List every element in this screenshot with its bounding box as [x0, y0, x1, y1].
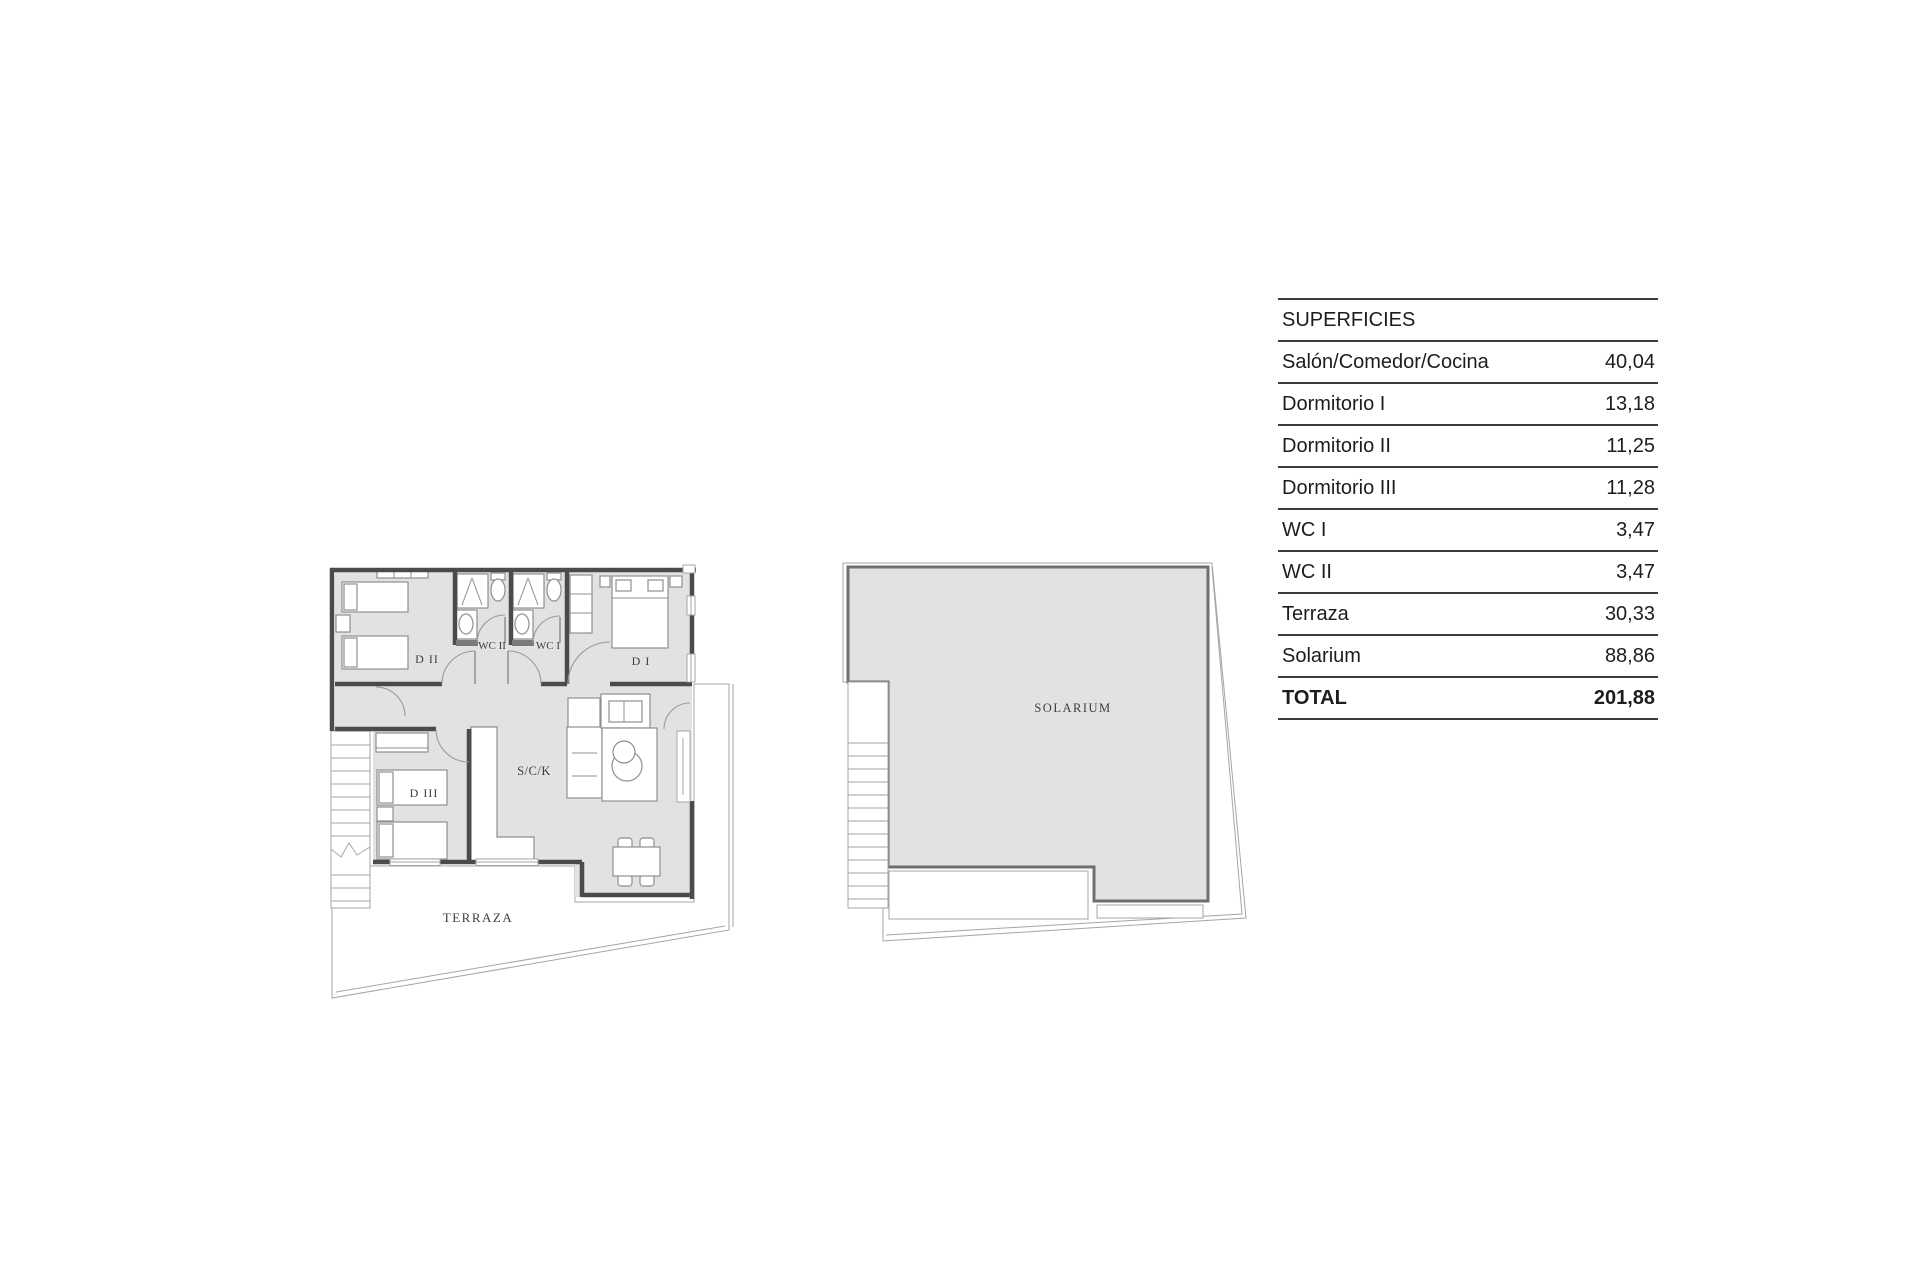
- wc2-threshold: [456, 640, 478, 646]
- table-row: WC II 3,47: [1278, 550, 1658, 592]
- table-total-row: TOTAL 201,88: [1278, 676, 1658, 718]
- row-value: 11,25: [1606, 436, 1655, 456]
- apartment-floorplan: D II WC II WC I D I D III S/C/K TERRAZA: [322, 553, 740, 1005]
- row-label: Terraza: [1282, 604, 1349, 624]
- solarium-stairs: [848, 682, 888, 908]
- table-header-row: SUPERFICIES: [1278, 298, 1658, 340]
- floorplan-sheet: D II WC II WC I D I D III S/C/K TERRAZA …: [0, 0, 1920, 1280]
- table-row: Dormitorio I 13,18: [1278, 382, 1658, 424]
- solarium-label: SOLARIUM: [1034, 701, 1111, 715]
- total-label: TOTAL: [1282, 688, 1347, 708]
- row-value: 13,18: [1605, 394, 1655, 414]
- total-value: 201,88: [1594, 688, 1655, 708]
- room-label-terraza: TERRAZA: [443, 910, 513, 925]
- row-label: WC I: [1282, 520, 1326, 540]
- room-label-d3: D III: [410, 786, 439, 800]
- row-value: 88,86: [1605, 646, 1655, 666]
- row-value: 11,28: [1606, 478, 1655, 498]
- stairs: [331, 731, 370, 908]
- row-label: Dormitorio I: [1282, 394, 1385, 414]
- row-value: 3,47: [1616, 520, 1655, 540]
- table-row: Dormitorio II 11,25: [1278, 424, 1658, 466]
- lower-edge-step: [1097, 905, 1203, 918]
- row-label: Dormitorio II: [1282, 436, 1391, 456]
- row-value: 40,04: [1605, 352, 1655, 372]
- row-label: Solarium: [1282, 646, 1361, 666]
- row-label: Salón/Comedor/Cocina: [1282, 352, 1489, 372]
- room-label-d2: D II: [415, 652, 439, 666]
- lower-roof-opening: [889, 871, 1088, 919]
- solarium-deck: [848, 567, 1208, 901]
- room-label-d1: D I: [632, 654, 651, 668]
- superficies-table: SUPERFICIES Salón/Comedor/Cocina 40,04 D…: [1278, 298, 1658, 720]
- room-label-wc2: WC II: [478, 640, 506, 652]
- room-label-wc1: WC I: [536, 640, 560, 652]
- table-header: SUPERFICIES: [1282, 310, 1415, 330]
- wc1-threshold: [512, 640, 534, 646]
- table-row: Dormitorio III 11,28: [1278, 466, 1658, 508]
- room-label-sck: S/C/K: [517, 764, 551, 778]
- table-row: WC I 3,47: [1278, 508, 1658, 550]
- table-row: Solarium 88,86: [1278, 634, 1658, 676]
- row-value: 3,47: [1616, 562, 1655, 582]
- table-row: Salón/Comedor/Cocina 40,04: [1278, 340, 1658, 382]
- row-label: Dormitorio III: [1282, 478, 1396, 498]
- row-value: 30,33: [1605, 604, 1655, 624]
- table-row: Terraza 30,33: [1278, 592, 1658, 634]
- row-label: WC II: [1282, 562, 1332, 582]
- solarium-floorplan: SOLARIUM: [838, 558, 1253, 958]
